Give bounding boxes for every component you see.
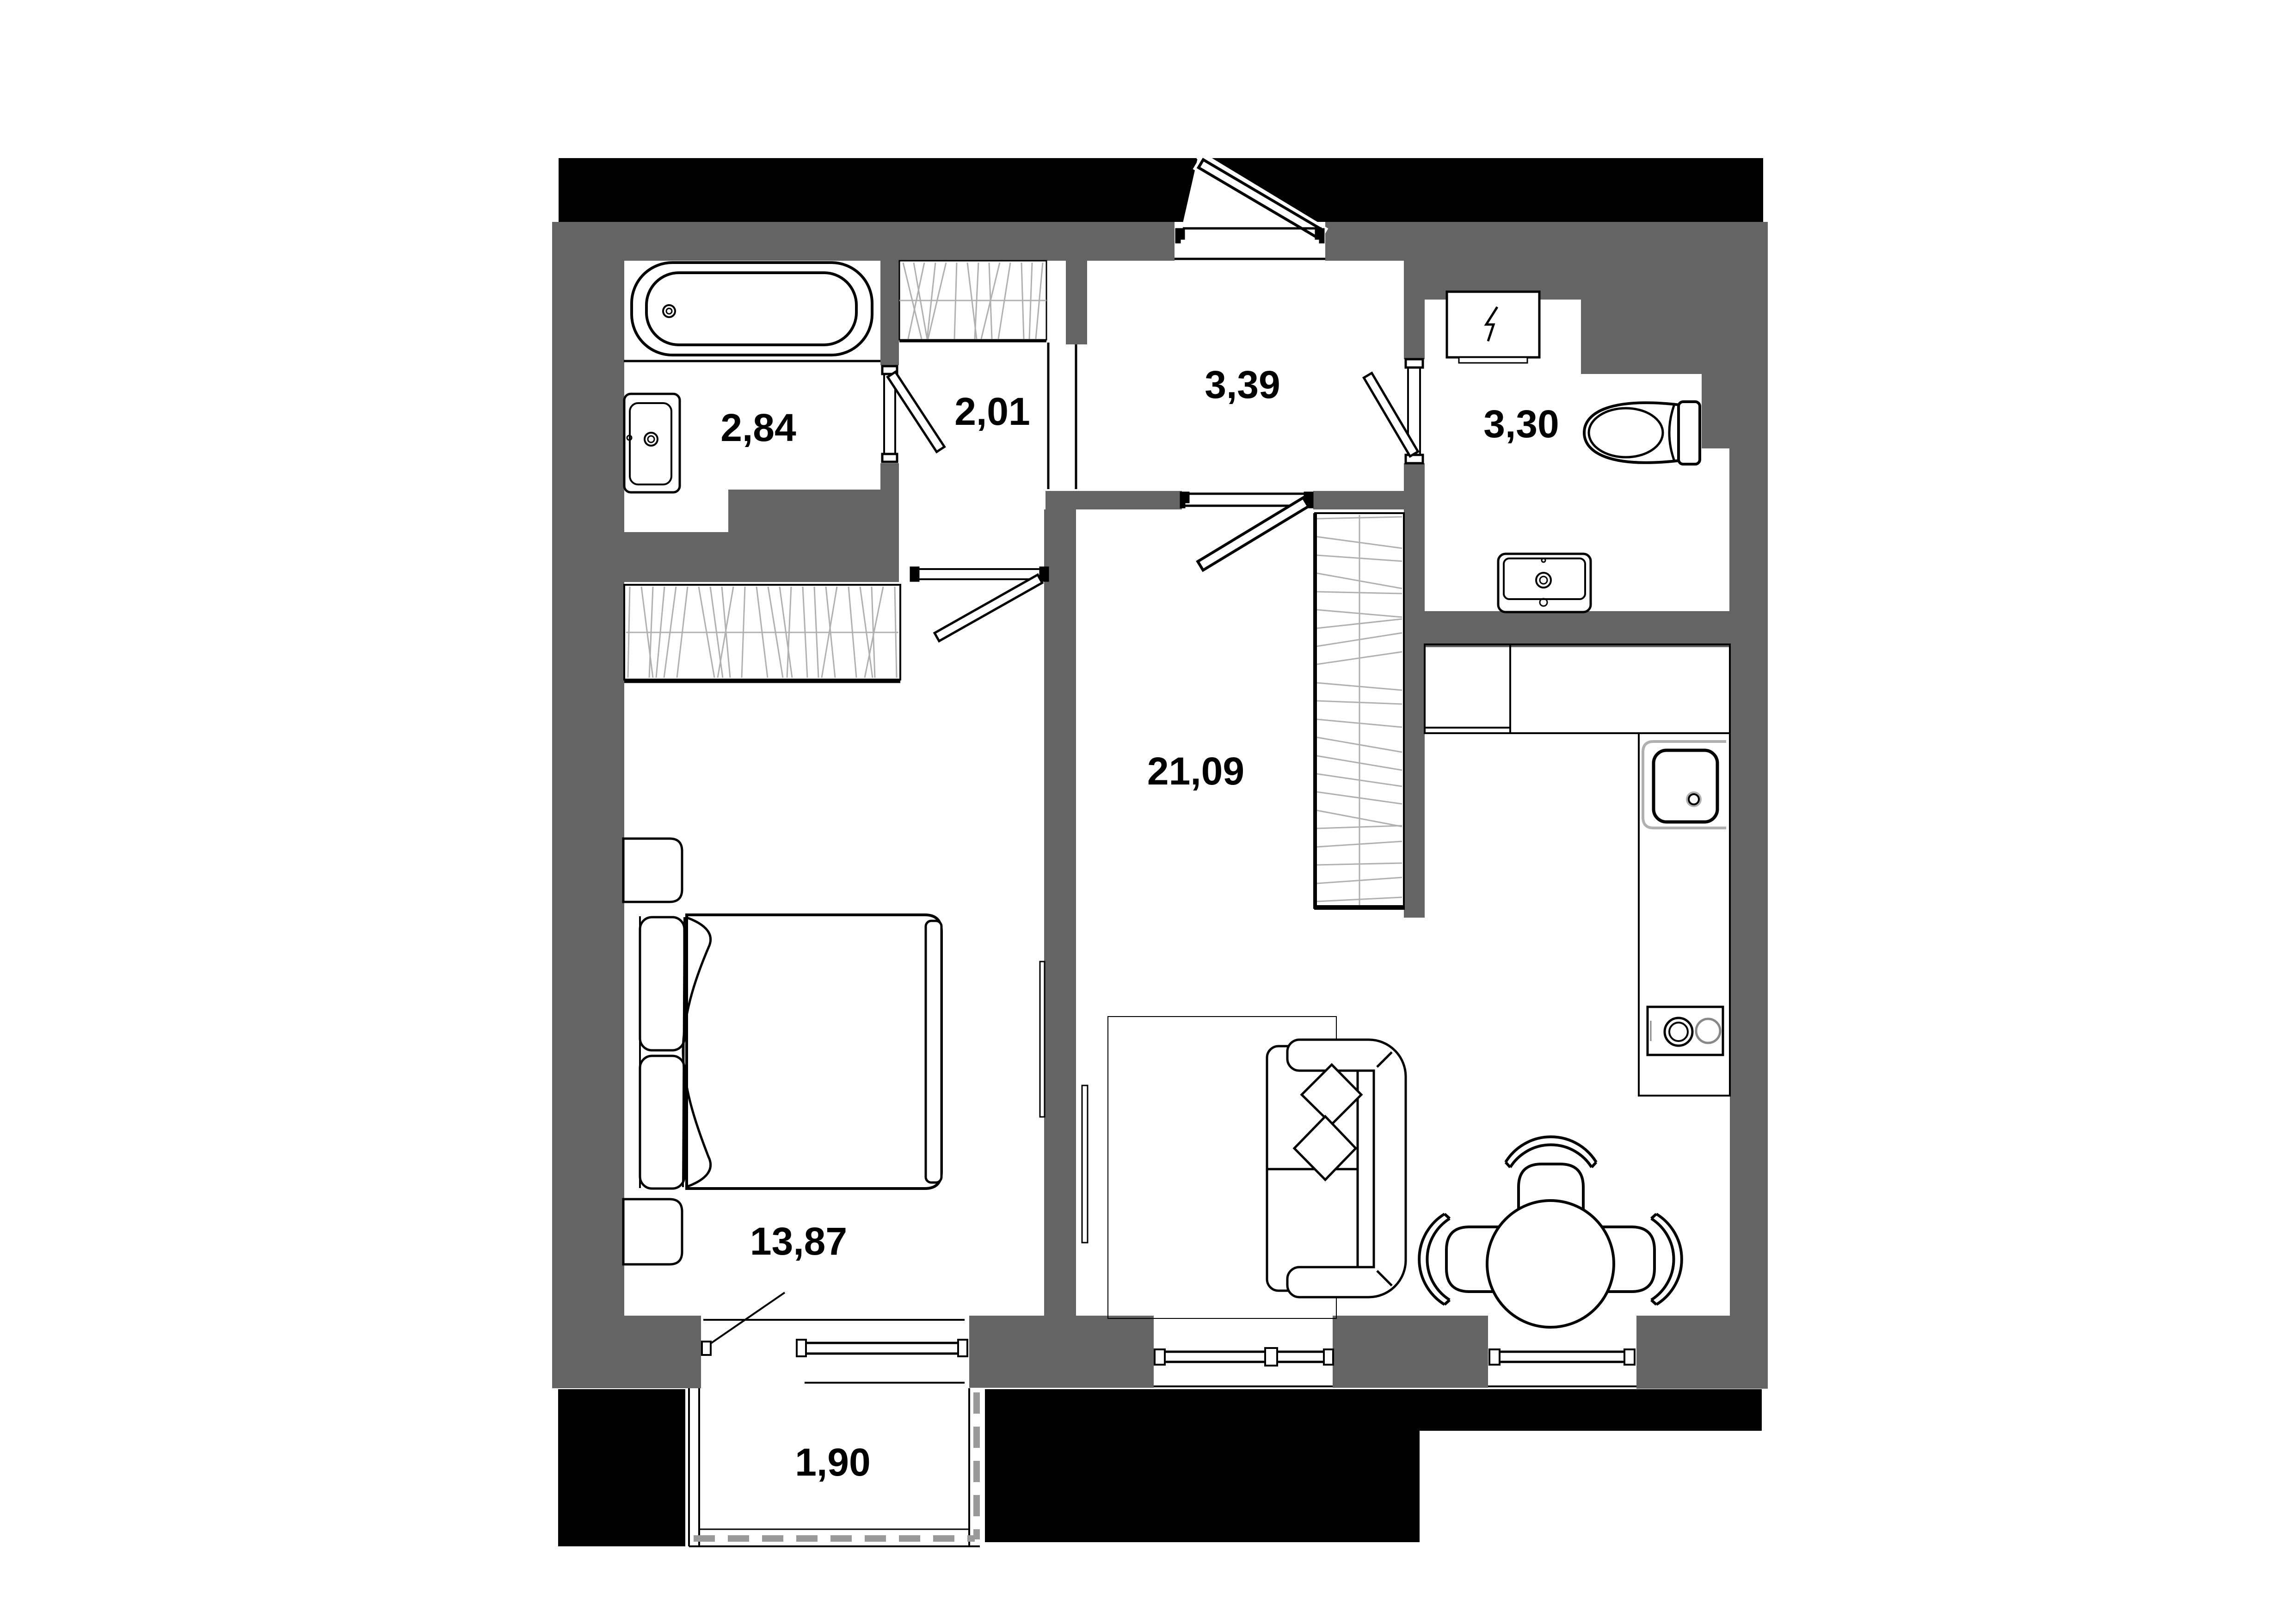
svg-text:3,39: 3,39 xyxy=(1205,363,1280,406)
svg-text:21,09: 21,09 xyxy=(1147,749,1244,793)
svg-text:13,87: 13,87 xyxy=(750,1220,847,1263)
svg-text:3,30: 3,30 xyxy=(1483,402,1559,446)
svg-text:1,90: 1,90 xyxy=(795,1440,871,1484)
svg-text:2,84: 2,84 xyxy=(720,406,796,449)
svg-text:2,01: 2,01 xyxy=(954,390,1030,433)
